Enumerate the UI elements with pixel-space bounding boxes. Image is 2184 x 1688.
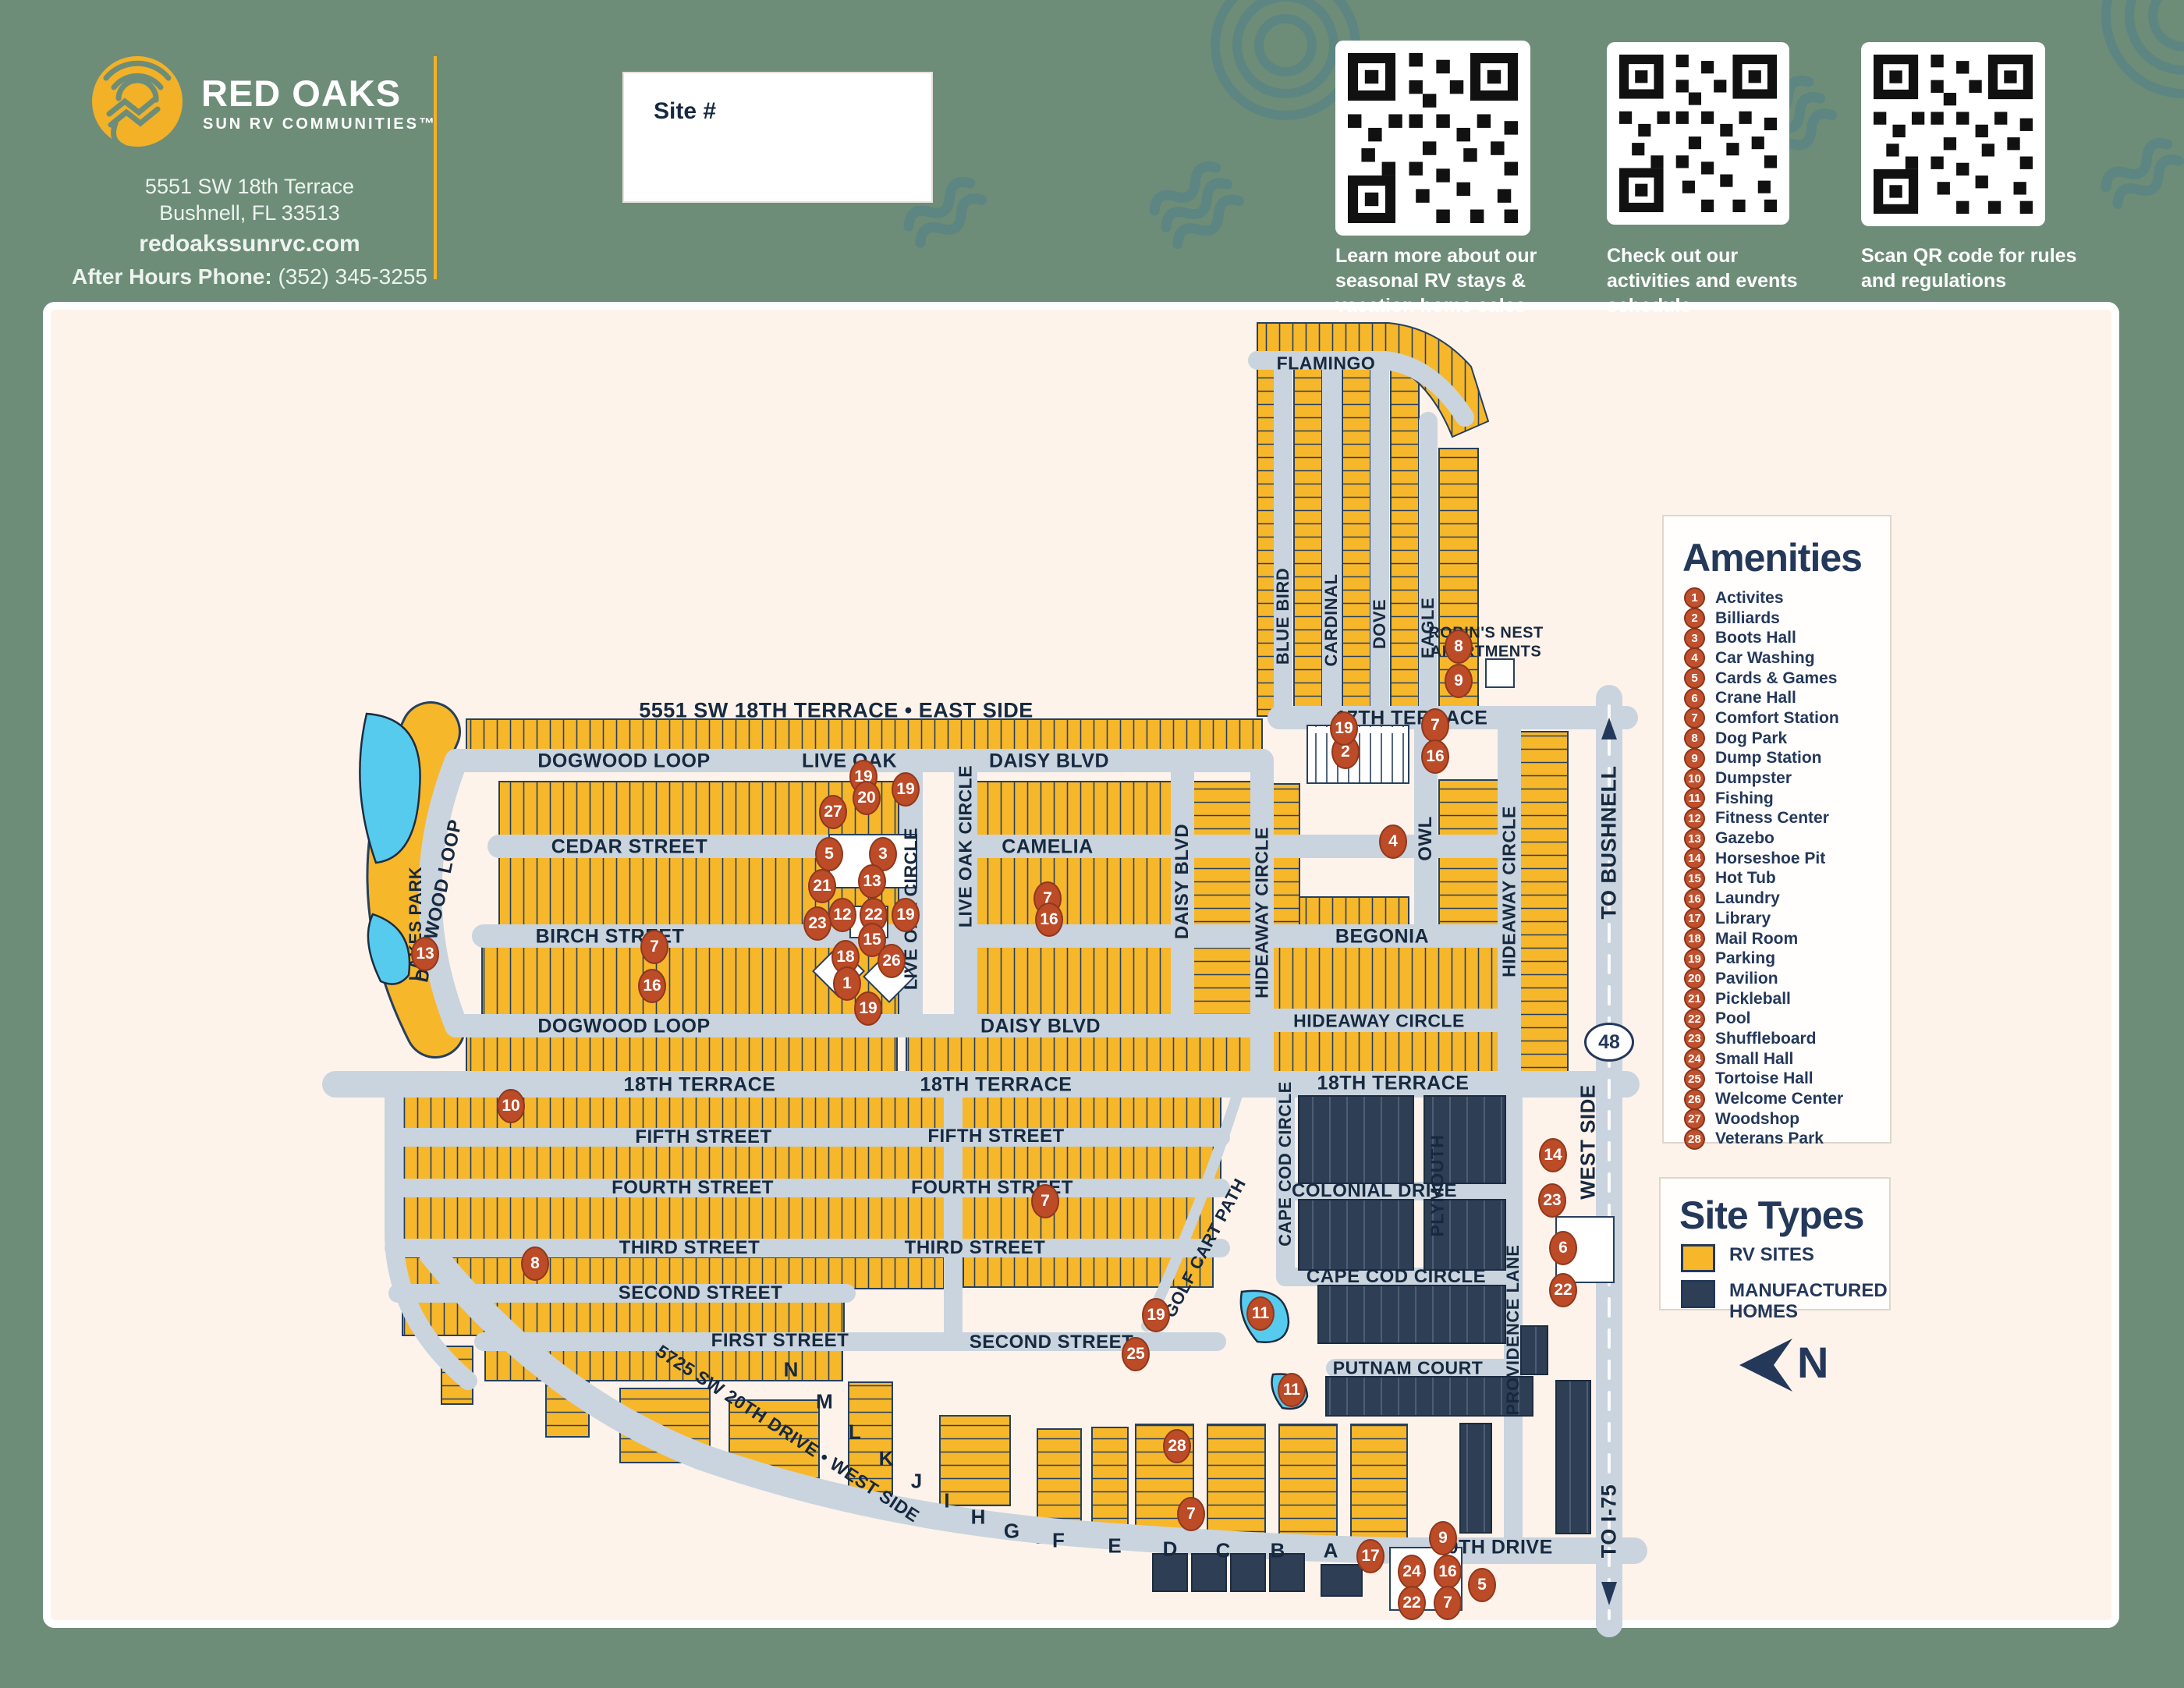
amenity-marker: 5 [815,837,843,871]
street-label: DOVE [1370,599,1390,649]
amenity-marker: 10 [497,1089,525,1123]
curve-letter: F [1052,1529,1065,1553]
amenity-label: Laundry [1715,889,1780,908]
after-hours-label: After Hours Phone: [72,264,272,289]
amenity-row: 9Dump Station [1664,749,1890,769]
street-label: FIFTH STREET [635,1126,771,1148]
street-label: 5551 SW 18TH TERRACE • EAST SIDE [639,699,1033,723]
amenity-row: 2Billiards [1664,608,1890,629]
amenity-marker: 7 [640,930,668,964]
amenity-number-badge: 6 [1684,688,1705,709]
curve-letter: J [911,1470,922,1494]
amenity-row: 13Gazebo [1664,828,1890,849]
amenity-row: 8Dog Park [1664,729,1890,749]
curve-letter: D [1163,1537,1178,1562]
street-label: FIFTH STREET [927,1126,1064,1147]
amenity-number-badge: 4 [1684,647,1705,668]
amenity-marker: 19 [1142,1298,1170,1332]
amenity-marker: 16 [1421,739,1449,774]
website: redoakssunrvc.com [62,231,437,257]
street-label: CEDAR STREET [551,836,707,859]
street-label: OWL [1415,816,1437,860]
amenity-marker: 12 [828,898,856,932]
amenity-label: Dumpster [1715,769,1792,788]
amenity-marker: 28 [1163,1429,1191,1463]
amenity-row: 19Parking [1664,949,1890,969]
address-block: 5551 SW 18th Terrace Bushnell, FL 33513 … [62,173,437,290]
amenity-number-badge: 14 [1684,848,1705,869]
qr-caption-1: Learn more about our seasonal RV stays &… [1335,243,1554,318]
north-arrow-icon [1738,1335,1797,1395]
address-line-2: Bushnell, FL 33513 [62,200,437,226]
street-label: 17TH TERRACE [1336,707,1488,730]
street-label: DAISY BLVD [1172,824,1193,939]
amenity-row: 22Pool [1664,1009,1890,1029]
amenity-marker: 9 [1429,1521,1457,1555]
street-label: THIRD STREET [905,1237,1046,1259]
street-label: SECOND STREET [970,1332,1134,1353]
amenity-marker: 11 [1278,1373,1306,1407]
amenity-number-badge: 19 [1684,949,1705,970]
amenity-row: 18Mail Room [1664,929,1890,949]
amenity-marker: 7 [1434,1586,1462,1620]
amenity-number-badge: 9 [1684,748,1705,769]
amenity-label: Car Washing [1715,649,1815,668]
amenity-row: 20Pavilion [1664,969,1890,989]
street-label: BLUE BIRD [1273,568,1293,665]
amenity-row: 23Shuffleboard [1664,1029,1890,1049]
amenity-marker: 25 [1122,1337,1150,1371]
curve-letter: B [1271,1539,1285,1563]
brand-logo [92,56,183,147]
amenity-label: Horseshoe Pit [1715,849,1825,868]
site-types-list: RV SITESMANUFACTURED HOMES [1661,1244,1889,1322]
street-label: DOGWOOD LOOP [537,1016,710,1038]
street-label: HIDEAWAY CIRCLE [1252,827,1273,998]
amenity-number-badge: 10 [1684,768,1705,789]
qr-code-1 [1335,41,1530,236]
amenity-marker: 16 [1434,1555,1462,1589]
amenity-marker: 13 [858,864,886,899]
amenity-label: Activites [1715,589,1784,608]
curve-letter: G [1004,1520,1019,1544]
amenity-marker: 4 [1379,824,1407,859]
street-label: TO BUSHNELL [1597,765,1622,919]
amenity-marker: 6 [1549,1231,1577,1265]
amenity-number-badge: 2 [1684,608,1705,629]
amenity-label: Mail Room [1715,930,1798,949]
amenity-marker: 1 [833,966,861,1001]
street-label: FIRST STREET [711,1330,849,1352]
street-label: PROVIDENCE LANE [1503,1245,1523,1416]
amenity-marker: 7 [1421,708,1449,743]
amenity-label: Shuffleboard [1715,1030,1817,1048]
amenity-number-badge: 24 [1684,1048,1705,1069]
amenities-title: Amenities [1682,535,1890,580]
amenity-label: Parking [1715,949,1775,968]
amenity-label: Hot Tub [1715,869,1776,888]
amenity-row: 28Veterans Park [1664,1129,1890,1150]
amenity-label: Woodshop [1715,1110,1799,1129]
amenity-marker: 21 [808,869,836,903]
amenity-marker: 9 [1445,664,1473,698]
amenity-marker: 5 [1468,1568,1496,1602]
amenity-row: 27Woodshop [1664,1109,1890,1129]
site-number-box[interactable]: Site # [622,72,933,203]
amenity-label: Gazebo [1715,829,1774,848]
amenity-row: 6Crane Hall [1664,688,1890,708]
street-label: BEGONIA [1335,926,1429,949]
street-label: DAISY BLVD [980,1016,1101,1038]
street-label: FOURTH STREET [612,1177,774,1199]
amenities-list: 1Activites2Billiards3Boots Hall4Car Wash… [1664,588,1890,1149]
amenities-panel: Amenities 1Activites2Billiards3Boots Hal… [1662,515,1891,1144]
amenity-label: Boots Hall [1715,629,1796,647]
amenity-number-badge: 1 [1684,587,1705,608]
street-label: HIDEAWAY CIRCLE [1499,806,1520,977]
street-label: 18TH TERRACE [920,1074,1072,1097]
amenity-marker: 20 [853,781,881,815]
amenity-row: 4Car Washing [1664,648,1890,668]
street-label: CAPE COD CIRCLE [1306,1266,1486,1288]
amenity-number-badge: 18 [1684,928,1705,949]
amenity-marker: 13 [411,937,439,971]
street-label: 18TH TERRACE [1317,1073,1470,1095]
site-number-label: Site # [622,72,933,125]
page: { "colors":{"green":"#6D8D78","teal":"#5… [0,0,2184,1688]
amenity-marker: 8 [1445,629,1473,664]
site-type-row: RV SITES [1661,1244,1889,1272]
route-48-badge: 48 [1584,1023,1634,1062]
amenity-row: 16Laundry [1664,888,1890,909]
amenity-label: Pickleball [1715,990,1791,1009]
street-label: FLAMINGO [1277,353,1376,374]
amenity-label: Small Hall [1715,1050,1793,1069]
qr-icon [1348,53,1518,223]
amenity-number-badge: 5 [1684,668,1705,689]
street-label: WEST SIDE [1576,1084,1601,1200]
brand-name: RED OAKS [201,72,401,115]
amenity-row: 21Pickleball [1664,989,1890,1009]
amenity-number-badge: 15 [1684,868,1705,889]
amenity-label: Comfort Station [1715,709,1839,728]
amenity-marker: 23 [803,906,831,941]
qr-icon [1619,55,1777,212]
amenity-marker: 27 [819,795,847,829]
amenity-label: Pool [1715,1009,1751,1028]
street-label: DAISY BLVD [989,750,1109,773]
street-label: 18TH TERRACE [624,1074,776,1097]
street-label: DOGWOOD LOOP [537,750,710,773]
amenity-label: Pavilion [1715,970,1778,988]
amenity-row: 12Fitness Center [1664,809,1890,829]
qr-code-2 [1607,42,1789,225]
amenity-label: Crane Hall [1715,689,1796,707]
amenity-marker: 26 [877,944,906,978]
amenity-marker: 16 [638,969,666,1003]
amenity-marker: 8 [521,1246,549,1281]
amenity-number-badge: 17 [1684,908,1705,929]
amenity-row: 7Comfort Station [1664,708,1890,729]
street-label: PLYMOUTH [1427,1135,1448,1237]
amenity-row: 14Horseshoe Pit [1664,849,1890,869]
street-label: SECOND STREET [619,1282,783,1304]
street-label: LIVE OAK CIRCLE [955,765,977,927]
amenity-number-badge: 7 [1684,707,1705,729]
amenity-label: Cards & Games [1715,669,1837,688]
qr-code-3 [1861,42,2045,226]
amenity-number-badge: 12 [1684,808,1705,829]
site-types-title: Site Types [1679,1193,1889,1238]
amenity-row: 26Welcome Center [1664,1089,1890,1109]
amenity-number-badge: 23 [1684,1028,1705,1049]
address-line-1: 5551 SW 18th Terrace [62,173,437,200]
curve-letter: L [849,1420,861,1445]
amenity-label: Fishing [1715,789,1774,808]
amenity-marker: 23 [1538,1183,1566,1218]
amenity-marker: 22 [1398,1586,1426,1620]
amenity-row: 1Activites [1664,588,1890,608]
street-label: CAPE COD CIRCLE [1275,1081,1296,1246]
amenity-marker: 11 [1246,1296,1275,1331]
site-type-label: RV SITES [1729,1244,1814,1265]
amenity-number-badge: 25 [1684,1069,1705,1090]
amenity-label: Library [1715,910,1771,928]
amenity-row: 10Dumpster [1664,768,1890,789]
curve-letter: E [1108,1534,1121,1559]
street-label: PUTNAM COURT [1333,1358,1484,1379]
north-arrow: N [1738,1335,1839,1395]
curve-letter: A [1324,1539,1338,1563]
site-type-swatch [1681,1244,1715,1272]
curve-letter: H [971,1505,986,1530]
qr-icon [1874,55,2033,214]
amenity-number-badge: 28 [1684,1129,1705,1150]
street-label: LIVE OAK [802,750,897,773]
amenity-number-badge: 22 [1684,1009,1705,1030]
amenity-row: 11Fishing [1664,789,1890,809]
amenity-number-badge: 26 [1684,1089,1705,1110]
amenity-number-badge: 20 [1684,968,1705,989]
amenity-marker: 16 [1035,903,1063,937]
amenity-row: 25Tortoise Hall [1664,1069,1890,1090]
amenity-label: Fitness Center [1715,809,1829,828]
amenity-number-badge: 27 [1684,1108,1705,1129]
amenity-number-badge: 13 [1684,828,1705,849]
amenity-label: Veterans Park [1715,1129,1824,1148]
amenity-label: Tortoise Hall [1715,1069,1813,1088]
amenity-marker: 19 [892,772,920,807]
amenity-marker: 17 [1356,1539,1384,1573]
curve-letter: M [816,1390,833,1414]
curve-letter: N [784,1358,799,1382]
street-label: TO I-75 [1597,1484,1622,1559]
amenity-marker: 19 [854,991,882,1026]
qr-caption-2: Check out our activities and events sche… [1607,243,1825,318]
after-hours: After Hours Phone: (352) 345-3255 [62,264,437,290]
amenity-marker: 19 [1330,711,1358,746]
amenity-label: Billiards [1715,609,1780,628]
street-label: CARDINAL [1321,574,1342,667]
site-type-row: MANUFACTURED HOMES [1661,1280,1889,1322]
amenity-number-badge: 3 [1684,628,1705,649]
street-label: HIDEAWAY CIRCLE [1293,1011,1465,1032]
curve-letter: C [1216,1539,1231,1563]
curve-letter: I [944,1489,949,1513]
street-label: CAMELIA [1002,836,1093,859]
amenity-marker: 7 [1177,1497,1205,1531]
amenity-row: 3Boots Hall [1664,628,1890,648]
amenity-marker: 24 [1398,1555,1426,1589]
curve-letter: K [879,1447,894,1471]
amenity-label: Welcome Center [1715,1090,1843,1108]
amenity-label: Dump Station [1715,749,1822,768]
after-hours-phone: (352) 345-3255 [278,264,427,289]
amenity-label: Dog Park [1715,729,1787,748]
north-letter: N [1797,1337,1828,1388]
amenity-marker: 14 [1539,1138,1567,1172]
amenity-marker: 19 [892,898,920,932]
amenity-number-badge: 11 [1684,788,1705,809]
amenity-number-badge: 21 [1684,988,1705,1009]
amenity-number-badge: 8 [1684,728,1705,749]
site-types-panel: Site Types RV SITESMANUFACTURED HOMES [1659,1177,1891,1310]
amenity-marker: 22 [1549,1273,1577,1307]
qr-caption-3: Scan QR code for rules and regulations [1861,243,2079,293]
site-type-label: MANUFACTURED HOMES [1729,1280,1862,1322]
amenity-marker: 7 [1031,1184,1059,1218]
brand-tagline: SUN RV COMMUNITIES™ [203,115,437,133]
street-label: THIRD STREET [619,1237,760,1259]
amenity-row: 15Hot Tub [1664,869,1890,889]
amenity-number-badge: 16 [1684,888,1705,910]
amenity-row: 24Small Hall [1664,1049,1890,1069]
site-type-swatch [1681,1280,1715,1308]
amenity-row: 5Cards & Games [1664,668,1890,689]
amenity-row: 17Library [1664,909,1890,929]
